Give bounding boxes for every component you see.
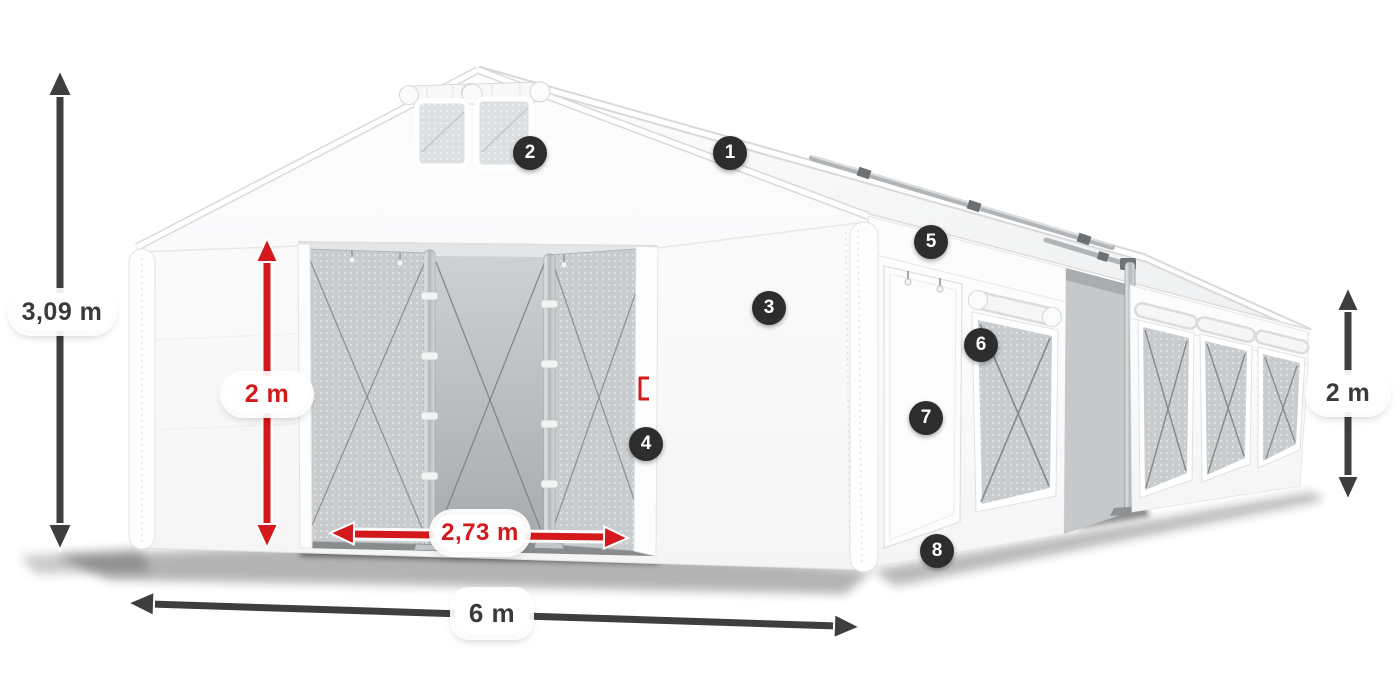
side-window [969, 291, 1062, 513]
rear-window-2 [1200, 324, 1252, 482]
tent-illustration [0, 0, 1400, 700]
dimension-label-total-height: 3,09 m [12, 293, 112, 331]
dimension-label-overall-width: 6 m [455, 592, 529, 635]
front-entrance [298, 242, 658, 556]
rear-window-3 [1258, 337, 1305, 468]
callout-badge-6[interactable]: 6 [964, 328, 998, 362]
callout-badge-2[interactable]: 2 [513, 136, 547, 170]
dimension-label-entrance-height: 2 m [225, 376, 309, 413]
callout-badge-5[interactable]: 5 [914, 225, 948, 259]
callout-badge-8[interactable]: 8 [920, 534, 954, 568]
tent-dimension-diagram: 3,09 m 2 m 2,73 m 6 m 2 m 1 2 3 4 5 6 7 … [0, 0, 1400, 700]
callout-badge-4[interactable]: 4 [629, 427, 663, 461]
entrance-door-left [305, 249, 438, 546]
dimension-label-entrance-width: 2,73 m [434, 514, 526, 552]
rear-window-1 [1138, 310, 1194, 498]
callout-badge-7[interactable]: 7 [909, 401, 943, 435]
callout-badge-3[interactable]: 3 [752, 291, 786, 325]
dimension-label-side-height: 2 m [1310, 375, 1386, 412]
callout-badge-1[interactable]: 1 [713, 136, 747, 170]
side-wall-middle-section [868, 216, 1066, 566]
